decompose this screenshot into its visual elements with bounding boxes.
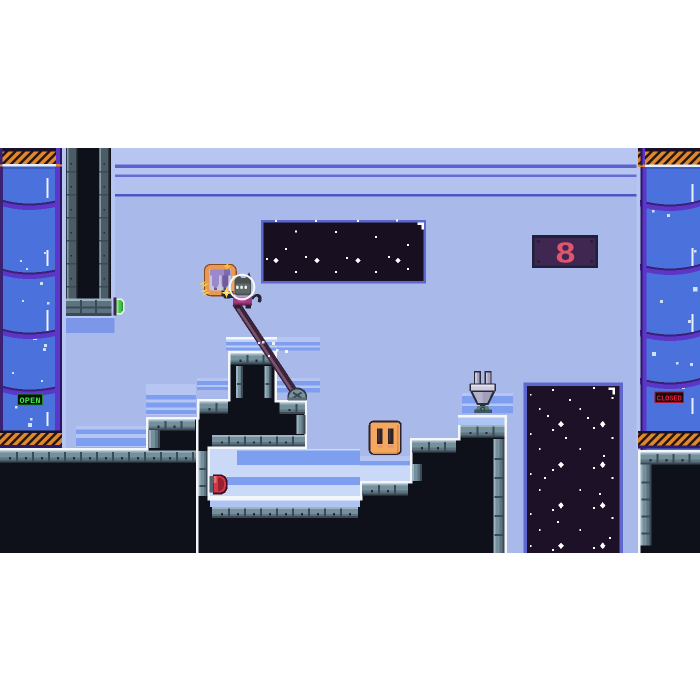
svg-text:8: 8: [556, 237, 576, 269]
svg-text:OPEN: OPEN: [20, 396, 41, 406]
svg-text:CLOSED: CLOSED: [657, 396, 682, 404]
